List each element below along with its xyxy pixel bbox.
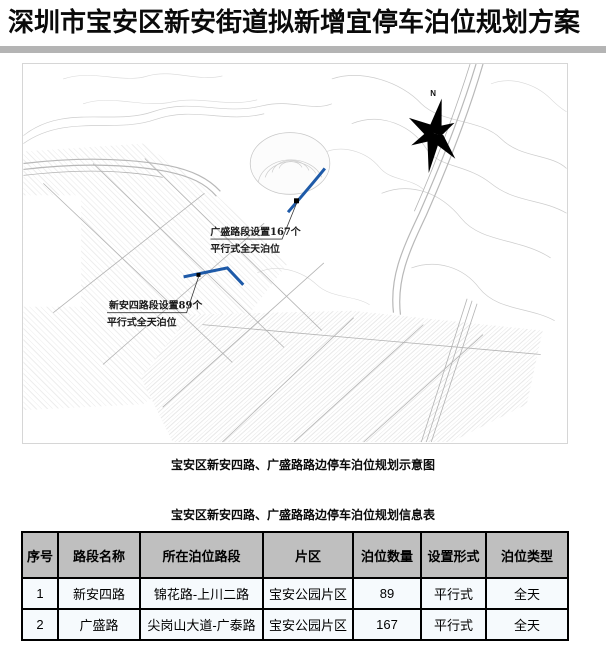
cell-road-name: 新安四路 bbox=[58, 578, 140, 609]
cell-road-section: 锦花路-上川二路 bbox=[140, 578, 263, 609]
cell-berth-type: 全天 bbox=[486, 609, 568, 640]
cell-road-section: 尖岗山大道-广泰路 bbox=[140, 609, 263, 640]
callout-guangsheng-line2: 平行式全天泊位 bbox=[210, 242, 280, 255]
callout-guangsheng-line1: 广盛路段设置167个 bbox=[210, 225, 301, 238]
table-header-row: 序号 路段名称 所在泊位路段 片区 泊位数量 设置形式 泊位类型 bbox=[22, 532, 568, 578]
callout-anchor-dot bbox=[294, 198, 299, 203]
header-road-section: 所在泊位路段 bbox=[140, 532, 263, 578]
callout-xinan-line2: 平行式全天泊位 bbox=[107, 316, 177, 329]
map-caption: 宝安区新安四路、广盛路路边停车泊位规划示意图 bbox=[0, 456, 606, 473]
cell-layout-type: 平行式 bbox=[421, 578, 486, 609]
cell-index: 1 bbox=[22, 578, 58, 609]
header-district: 片区 bbox=[263, 532, 353, 578]
planning-map: 广盛路段设置167个 平行式全天泊位 新安四路段设置89个 平行式全天泊位 N bbox=[22, 63, 568, 444]
header-index: 序号 bbox=[22, 532, 58, 578]
cell-district: 宝安公园片区 bbox=[263, 609, 353, 640]
cell-district: 宝安公园片区 bbox=[263, 578, 353, 609]
table-row: 1 新安四路 锦花路-上川二路 宝安公园片区 89 平行式 全天 bbox=[22, 578, 568, 609]
header-road-name: 路段名称 bbox=[58, 532, 140, 578]
cell-road-name: 广盛路 bbox=[58, 609, 140, 640]
callout-anchor-dot bbox=[197, 273, 201, 277]
page-title: 深圳市宝安区新安街道拟新增宜停车泊位规划方案 bbox=[8, 2, 604, 39]
cell-berth-count: 89 bbox=[353, 578, 421, 609]
header-berth-type: 泊位类型 bbox=[486, 532, 568, 578]
document-page: 深圳市宝安区新安街道拟新增宜停车泊位规划方案 bbox=[0, 0, 606, 646]
table-row: 2 广盛路 尖岗山大道-广泰路 宝安公园片区 167 平行式 全天 bbox=[22, 609, 568, 640]
title-divider-bar bbox=[0, 46, 606, 53]
table-title: 宝安区新安四路、广盛路路边停车泊位规划信息表 bbox=[0, 506, 606, 523]
callout-xinan-line1: 新安四路段设置89个 bbox=[109, 299, 203, 312]
cell-berth-type: 全天 bbox=[486, 578, 568, 609]
header-layout-type: 设置形式 bbox=[421, 532, 486, 578]
parking-info-table: 序号 路段名称 所在泊位路段 片区 泊位数量 设置形式 泊位类型 1 新安四路 … bbox=[21, 531, 569, 641]
cell-berth-count: 167 bbox=[353, 609, 421, 640]
cell-layout-type: 平行式 bbox=[421, 609, 486, 640]
header-berth-count: 泊位数量 bbox=[353, 532, 421, 578]
svg-text:N: N bbox=[430, 89, 436, 98]
cell-index: 2 bbox=[22, 609, 58, 640]
